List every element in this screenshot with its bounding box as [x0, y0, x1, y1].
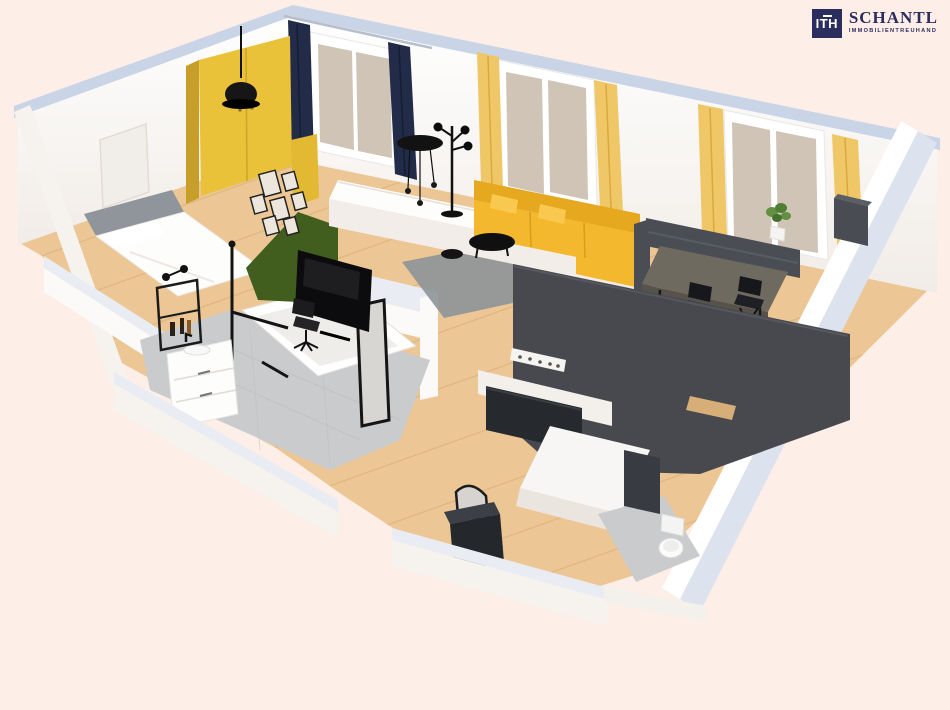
living-window-1 — [498, 60, 597, 206]
floor-plan-page: ITH SCHANTL IMMOBILIENTREUHAND — [0, 0, 950, 710]
logo-company-name: SCHANTL — [849, 9, 938, 26]
floor-plan-render — [0, 0, 950, 710]
sideboard-cabinet — [834, 194, 872, 246]
company-logo: ITH SCHANTL IMMOBILIENTREUHAND — [812, 9, 938, 38]
logo-mark-icon: ITH — [812, 9, 842, 38]
wc-door — [624, 450, 660, 514]
sink — [184, 345, 210, 355]
logo-tagline: IMMOBILIENTREUHAND — [849, 29, 938, 35]
logo-text: SCHANTL IMMOBILIENTREUHAND — [849, 9, 938, 35]
bedroom-window — [310, 32, 399, 168]
side-table — [441, 249, 463, 259]
